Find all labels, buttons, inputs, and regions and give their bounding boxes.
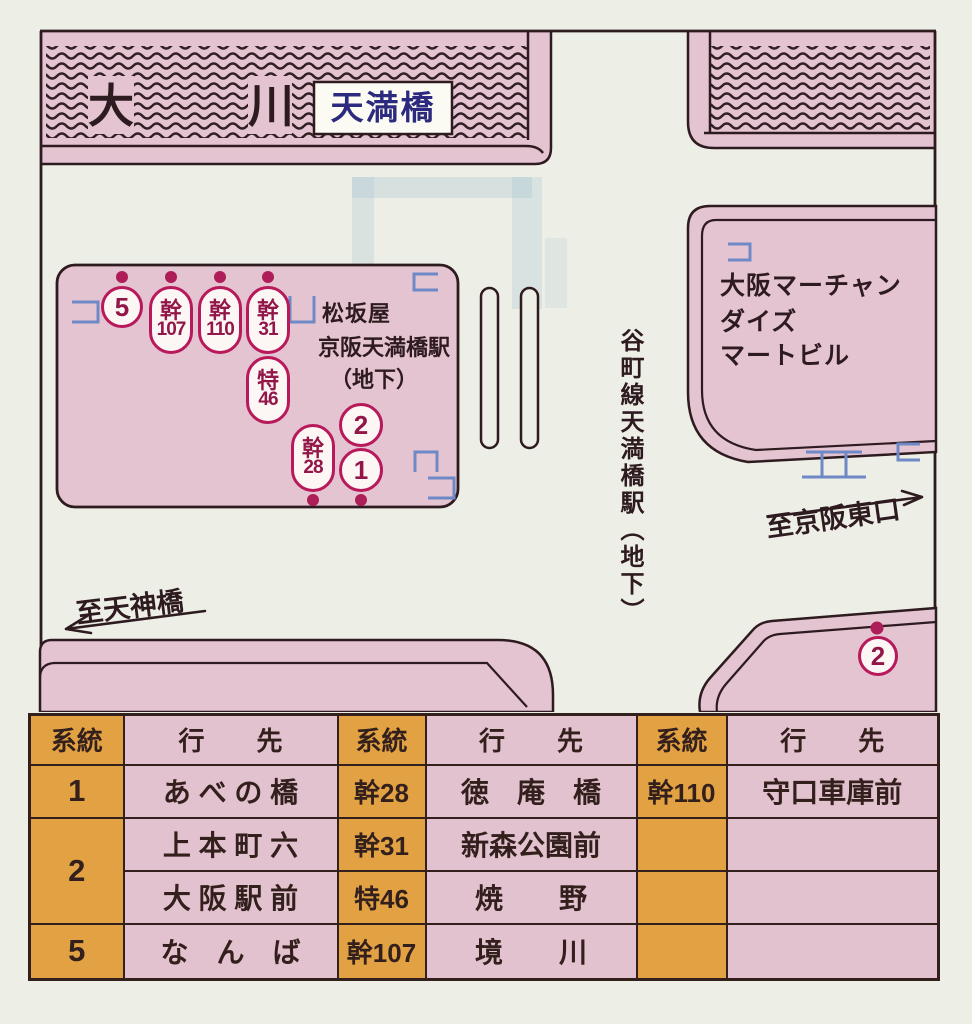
matsuzakaya-label: 松坂屋: [322, 296, 391, 328]
bus-stop-kan110: 幹 110: [198, 286, 242, 354]
bus-stop-5-label: 5: [115, 295, 129, 320]
route-empty-2: [637, 871, 727, 924]
bus-stop-toku46: 特 46: [246, 356, 290, 424]
bus-stop-kan107: 幹 107: [149, 286, 193, 354]
table-row: 5 な ん ば 幹107 境 川: [30, 924, 939, 980]
header-yukisaki-1: 行 先: [124, 715, 338, 765]
dest-shinmori: 新森公園前: [426, 818, 637, 871]
southwest-block: [40, 640, 553, 712]
dest-namba: な ん ば: [124, 924, 338, 980]
dest-tokuanbashi: 徳 庵 橋: [426, 765, 637, 818]
bus-stop-kan31: 幹 31: [246, 286, 290, 354]
southeast-block: [699, 608, 936, 712]
bus-stop-5: 5: [101, 286, 143, 328]
header-yukisaki-2: 行 先: [426, 715, 637, 765]
route-1: 1: [30, 765, 124, 818]
median-strips: [481, 288, 538, 448]
route-5: 5: [30, 924, 124, 980]
dest-empty-2: [727, 871, 939, 924]
dest-empty-3: [727, 924, 939, 980]
dest-yakeno: 焼 野: [426, 871, 637, 924]
header-keito-2: 系統: [338, 715, 426, 765]
route-kan107: 幹107: [338, 924, 426, 980]
route-empty-3: [637, 924, 727, 980]
route-2: 2: [30, 818, 124, 924]
header-keito-1: 系統: [30, 715, 124, 765]
water-waves-right: [710, 46, 930, 130]
header-keito-3: 系統: [637, 715, 727, 765]
table-row: 2 上 本 町 六 幹31 新森公園前: [30, 818, 939, 871]
route-kan110: 幹110: [637, 765, 727, 818]
river-name-left: 大: [88, 70, 134, 136]
bus-stop-kan28: 幹 28: [291, 424, 335, 492]
bridge-label: 天満橋: [314, 82, 452, 134]
bus-stop-2: 2: [339, 403, 383, 447]
river-name-right: 川: [248, 70, 292, 136]
dest-sakaigawa: 境 川: [426, 924, 637, 980]
route-empty-1: [637, 818, 727, 871]
dest-moriguchi: 守口車庫前: [727, 765, 939, 818]
table-header-row: 系統 行 先 系統 行 先 系統 行 先: [30, 715, 939, 765]
route-toku46: 特46: [338, 871, 426, 924]
route-kan31: 幹31: [338, 818, 426, 871]
bus-stop-2-southeast: 2: [858, 636, 898, 676]
building-name-line1: 大阪マーチャン: [720, 266, 902, 302]
keihan-station-note: （地下）: [330, 362, 418, 394]
tanimachi-station-label: 谷町線天満橋駅（地下）: [612, 328, 647, 628]
dest-uehommachi: 上 本 町 六: [124, 818, 338, 871]
header-yukisaki-3: 行 先: [727, 715, 939, 765]
route-destination-table: 系統 行 先 系統 行 先 系統 行 先 1 あ べ の 橋 幹28 徳 庵 橋…: [28, 713, 940, 981]
dest-empty-1: [727, 818, 939, 871]
bus-stop-map-page: { "colors": { "background": "#edeee5", "…: [0, 0, 972, 1024]
bus-stop-1: 1: [339, 448, 383, 492]
river-right-bank: [688, 32, 936, 148]
table-row: 大 阪 駅 前 特46 焼 野: [30, 871, 939, 924]
building-name-line2: ダイズ: [720, 302, 797, 338]
keihan-station-label: 京阪天満橋駅: [318, 330, 450, 362]
dest-osaka-station: 大 阪 駅 前: [124, 871, 338, 924]
building-name-line3: マートビル: [720, 336, 850, 372]
street-map: 大 川 天満橋 松坂屋 京阪天満橋駅 （地下） 大阪マーチャン ダイズ マートビ…: [0, 0, 972, 712]
dest-abenobashi: あ べ の 橋: [124, 765, 338, 818]
table-row: 1 あ べ の 橋 幹28 徳 庵 橋 幹110 守口車庫前: [30, 765, 939, 818]
route-kan28: 幹28: [338, 765, 426, 818]
